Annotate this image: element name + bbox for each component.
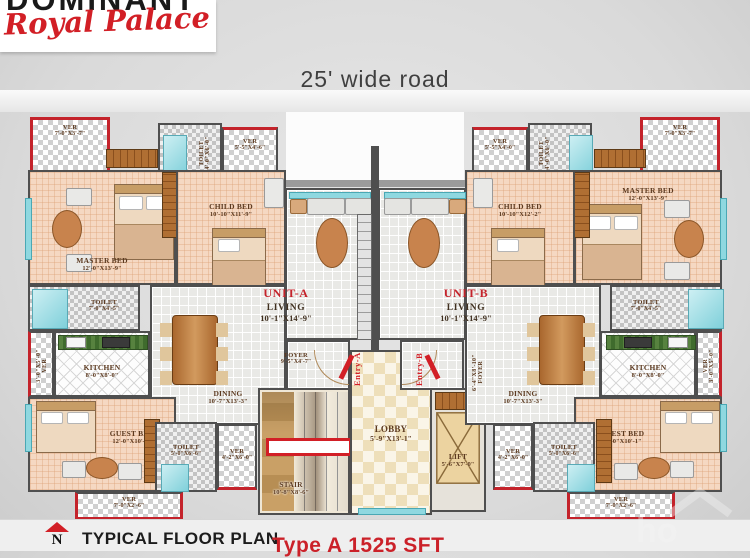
toilet-bottom-b: TOILET 5'-0"X6'-6" bbox=[533, 422, 595, 492]
pillow bbox=[665, 412, 687, 424]
chair-icon bbox=[614, 463, 638, 480]
chair-icon bbox=[664, 200, 690, 218]
headboard bbox=[213, 229, 265, 238]
wardrobe-icon bbox=[574, 172, 590, 238]
wardrobe-icon bbox=[106, 149, 158, 168]
desk-icon bbox=[473, 178, 493, 208]
pillow bbox=[614, 216, 638, 230]
toilet-bottom-a-label: TOILET 5'-0"X6'-6" bbox=[157, 444, 215, 457]
road-label: 25' wide road bbox=[0, 66, 750, 93]
chair-icon bbox=[118, 463, 142, 480]
shower-icon bbox=[567, 464, 595, 492]
pillow bbox=[67, 412, 89, 424]
pillow bbox=[691, 412, 713, 424]
lobby-label: LOBBY 5'-9"X13'-1" bbox=[352, 424, 430, 443]
veranda-mid-bottom-b-label: VER 4'-2"X6'-0" bbox=[495, 448, 531, 461]
north-icon: N bbox=[44, 522, 70, 549]
veranda-mid-bottom-a-label: VER 4'-2"X6'-0" bbox=[219, 448, 255, 461]
house-watermark-icon: ho bbox=[628, 484, 738, 554]
master-bed-room-a: MASTER BED 12'-0"X13'-9" bbox=[28, 170, 176, 285]
desk-icon bbox=[264, 178, 284, 208]
headboard bbox=[492, 229, 544, 238]
veranda-side-a-label: 3'-0"X5'-0" VER bbox=[31, 337, 52, 395]
plan-type-label: Type A 1525 SFT bbox=[272, 534, 444, 558]
pillow bbox=[497, 239, 519, 252]
bed-icon bbox=[491, 228, 545, 286]
toilet-mid-b: TOILET 7'-0"X4'-5" bbox=[610, 285, 722, 331]
brand-script-name: Royal Palace bbox=[4, 3, 211, 39]
oval-table-icon bbox=[86, 457, 118, 479]
veranda-mid-bottom-a: VER 4'-2"X6'-0" bbox=[217, 424, 257, 490]
dining-chairs bbox=[527, 319, 539, 385]
window-strip bbox=[720, 404, 727, 452]
chair-icon bbox=[66, 188, 92, 206]
stove-icon bbox=[102, 337, 130, 348]
veranda-side-b: VER 3'-0"X5'-0" bbox=[696, 331, 722, 397]
pillow bbox=[41, 412, 63, 424]
sofa-icon bbox=[345, 198, 372, 215]
window-strip bbox=[25, 198, 32, 260]
veranda-top2-a-label: VER 5'-5"X4'-6" bbox=[224, 138, 276, 151]
entry-b-label: Entry-B bbox=[414, 344, 424, 394]
dining-table-icon bbox=[539, 315, 585, 385]
shower-icon bbox=[161, 464, 189, 492]
foyer-b-label: 6'-4"X8'-10" FOYER bbox=[466, 340, 490, 404]
veranda-top-right-b-label: VER 7'-0"X3'-7" bbox=[643, 124, 717, 137]
sink-icon bbox=[668, 337, 688, 348]
master-bed-room-b: MASTER BED 12'-0"X13'-9" bbox=[574, 170, 722, 285]
toilet-mid-b-label: TOILET 7'-0"X4'-5" bbox=[614, 299, 678, 312]
shower-icon bbox=[688, 289, 724, 329]
oval-table-icon bbox=[638, 457, 670, 479]
veranda-mid-bottom-b: VER 4'-2"X6'-0" bbox=[493, 424, 533, 490]
master-bed-b-label: MASTER BED 12'-0"X13'-9" bbox=[576, 186, 720, 202]
living-room-b bbox=[378, 188, 466, 340]
road-strip bbox=[0, 90, 750, 112]
veranda-bottom-a: VER 7'-0"X2'-6" bbox=[75, 492, 183, 520]
stove-icon bbox=[624, 337, 652, 348]
veranda-top-right-b: VER 7'-0"X3'-7" bbox=[640, 117, 720, 172]
bed-icon bbox=[36, 401, 96, 453]
headboard bbox=[583, 205, 641, 214]
chair-icon bbox=[62, 461, 86, 478]
kitchen-b-label: KITCHEN 8'-0"X8'-0" bbox=[602, 363, 694, 379]
sink-icon bbox=[66, 337, 86, 348]
bed-icon bbox=[660, 401, 720, 453]
window-strip bbox=[720, 198, 727, 260]
rug-icon bbox=[408, 218, 440, 268]
headboard bbox=[661, 402, 719, 411]
sofa-icon bbox=[449, 199, 466, 214]
wardrobe-icon bbox=[596, 419, 612, 483]
toilet-bottom-b-label: TOILET 5'-0"X6'-6" bbox=[535, 444, 593, 457]
blanket bbox=[492, 260, 544, 285]
sofa-icon bbox=[307, 198, 345, 215]
toilet-mid-a-label: TOILET 7'-0"X4'-5" bbox=[72, 299, 136, 312]
north-letter: N bbox=[44, 532, 70, 549]
shower-icon bbox=[32, 289, 68, 329]
veranda-bottom-a-label: VER 7'-0"X2'-6" bbox=[78, 496, 180, 509]
sofa-icon bbox=[411, 198, 449, 215]
guest-bed-room-a: GUEST BED 12'-0"X10'-1" bbox=[28, 397, 176, 492]
sofa-icon bbox=[384, 198, 411, 215]
pillow bbox=[119, 196, 143, 210]
child-bed-room-a: CHILD BED 10'-10"X11'-9" bbox=[176, 170, 286, 285]
wardrobe-icon bbox=[594, 149, 646, 168]
veranda-top-left-a-label: VER 7'-0"X3'-7" bbox=[33, 124, 107, 137]
plan-title: TYPICAL FLOOR PLAN bbox=[82, 529, 279, 549]
pillow bbox=[218, 239, 240, 252]
wall-cabinet bbox=[357, 214, 372, 340]
entry-a-label: Entry-A bbox=[352, 344, 362, 394]
dining-table-icon bbox=[172, 315, 218, 385]
toilet-mid-a: TOILET 7'-0"X4'-5" bbox=[28, 285, 140, 331]
chair-icon bbox=[664, 262, 690, 280]
chair-icon bbox=[670, 461, 694, 478]
window-strip bbox=[25, 404, 32, 452]
blanket bbox=[583, 244, 641, 279]
chair-icon bbox=[66, 254, 92, 272]
veranda-top2-b-label: VER 5'-5"X4'-0" bbox=[474, 138, 526, 151]
guest-bed-room-b: GUEST BED 12'-0"X10'-1" bbox=[574, 397, 722, 492]
oval-table-icon bbox=[52, 210, 82, 248]
watermark-text: ho bbox=[636, 512, 678, 550]
stair-level-marker bbox=[266, 438, 352, 456]
rug-icon bbox=[316, 218, 348, 268]
veranda-side-a: 3'-0"X5'-0" VER bbox=[28, 331, 54, 397]
floor-plan-page: { "header": { "brand": "DOMINANT", "bran… bbox=[0, 0, 750, 550]
veranda-side-b-label: VER 3'-0"X5'-0" bbox=[698, 337, 719, 395]
pillow bbox=[587, 216, 611, 230]
headboard bbox=[37, 402, 95, 411]
dining-chairs bbox=[160, 319, 172, 385]
kitchen-a-label: KITCHEN 8'-0"X8'-0" bbox=[56, 363, 148, 379]
oval-table-icon bbox=[674, 220, 704, 258]
kitchen-b: KITCHEN 8'-0"X8'-0" bbox=[600, 331, 696, 397]
dining-chairs bbox=[216, 319, 228, 385]
north-roof bbox=[45, 522, 69, 532]
child-bed-room-b: CHILD BED 10'-10"X12'-2" bbox=[465, 170, 575, 285]
window-strip bbox=[358, 508, 426, 515]
dining-chairs bbox=[583, 319, 595, 385]
staircase: STAIR 10'-8"X8'-6" bbox=[258, 388, 350, 515]
blanket bbox=[213, 260, 265, 285]
sofa-icon bbox=[290, 199, 307, 214]
bed-icon bbox=[212, 228, 266, 286]
veranda-top-left-a: VER 7'-0"X3'-7" bbox=[30, 117, 110, 172]
toilet-bottom-a: TOILET 5'-0"X6'-6" bbox=[155, 422, 217, 492]
brand-logo: DOMINANT Royal Palace bbox=[0, 0, 216, 52]
kitchen-a: KITCHEN 8'-0"X8'-0" bbox=[54, 331, 150, 397]
bed-icon bbox=[582, 204, 642, 280]
